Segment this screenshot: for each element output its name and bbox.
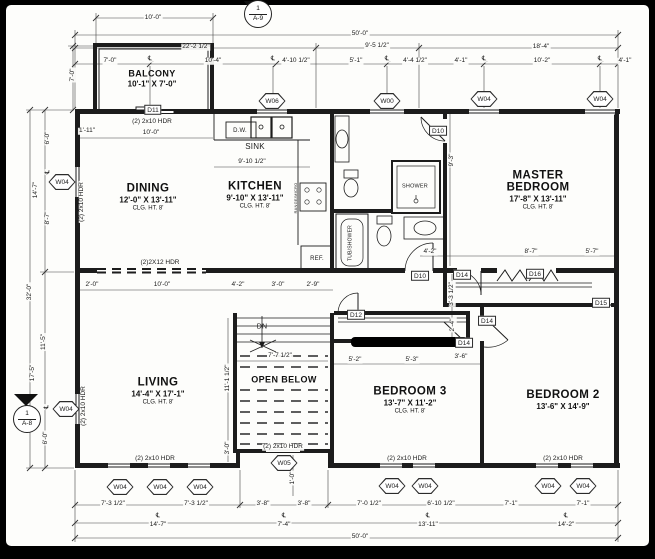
window-tag: W04 (107, 479, 134, 495)
window-tag-label: W04 (379, 478, 406, 494)
window-tag: W06 (259, 93, 286, 109)
dimension-label: ℄ (425, 513, 431, 520)
door-tag: D10 (429, 126, 447, 136)
window-tag: W04 (379, 478, 406, 494)
dimension-label: ℄ (155, 513, 161, 520)
room-label: KITCHEN9'-10" X 13'-11"CLG. HT. 8' (226, 180, 283, 209)
dimension-label: 10'-0" (144, 15, 163, 22)
dimension-label: 9'-5 1/2" (364, 43, 390, 50)
room-name: OPEN BELOW (251, 375, 317, 384)
dimension-label: 32'-0" (27, 283, 34, 302)
dimension-label: 3'-8" (256, 501, 271, 508)
window-tag: W04 (53, 401, 80, 417)
dimension-label: 6'-0" (45, 131, 52, 146)
header-label: (2) 2x10 HDR (81, 385, 88, 427)
door-tag: D11 (144, 105, 161, 115)
door-tag: D15 (592, 298, 610, 308)
dimension-label: 11'-5" (41, 333, 48, 351)
dimension-label: 4'-1" (618, 58, 633, 65)
room-size: 13'-7" X 11'-2" (373, 399, 446, 408)
dimension-label: 4'-10 1/2" (281, 58, 310, 65)
dimension-label: 7'-4" (277, 522, 292, 529)
fixture-label: DN (256, 324, 269, 331)
room-label: BEDROOM 213'-6" X 14'-9" (526, 389, 599, 411)
dimension-label: 14'-7" (33, 181, 40, 200)
dimension-label: 3'-3 1/2" (449, 281, 456, 307)
dimension-label: 7'-3 1/2" (183, 501, 209, 508)
dimension-label: 14'-2" (557, 522, 576, 529)
room-name: LIVING (131, 376, 184, 388)
room-name: BALCONY (128, 69, 177, 78)
window-tag-label: W05 (271, 455, 298, 471)
header-label: (2) 2x10 HDR (542, 456, 584, 463)
door-tag: D12 (347, 310, 365, 320)
header-label: (2) 2x10 HDR (262, 444, 304, 451)
dimension-label: 10'-2" (533, 58, 552, 65)
dimension-label: 4'-1" (454, 58, 469, 65)
room-label: MASTER BEDROOM17'-8" X 13'-11"CLG. HT. 8… (498, 169, 578, 210)
window-tag-label: W04 (187, 479, 214, 495)
dimension-label: 3'-0" (271, 282, 286, 289)
window-tag: W04 (570, 478, 597, 494)
door-tag: D14 (455, 338, 473, 348)
door-tag: D14 (453, 270, 471, 280)
dimension-label: 3'-8" (297, 501, 312, 508)
window-tag: W04 (471, 91, 498, 107)
fixture-label: RANGE/MICRO (294, 182, 298, 215)
dimension-label: 7'-0 1/2" (356, 501, 382, 508)
header-label: (2) 2x10 HDR (386, 456, 428, 463)
dimension-label: 2'-4" (450, 318, 457, 333)
dimension-label: 1'-11" (78, 128, 96, 135)
window-tag-label: W04 (535, 478, 562, 494)
header-label: (2) 2x10 HDR (79, 181, 86, 223)
dimension-label: 5'-2" (348, 357, 363, 364)
dimension-label: 9'-3" (449, 153, 456, 168)
window-tag: W00 (374, 93, 401, 109)
room-ceiling-height: CLG. HT. 8' (131, 400, 184, 406)
dimension-label: 4'-2" (423, 249, 438, 256)
dimension-label: 4'-2" (231, 282, 246, 289)
dimension-label: 7'-0" (103, 58, 118, 65)
dimension-label: 18'-4" (532, 44, 551, 51)
dimension-label: 10'-0" (153, 282, 172, 289)
window-tag: W04 (49, 174, 76, 190)
window-tag-label: W06 (259, 93, 286, 109)
dimension-label: ℄ (597, 56, 603, 63)
room-name: DINING (119, 182, 176, 194)
dimension-label: 10'-0" (142, 130, 161, 137)
room-ceiling-height: CLG. HT. 8' (119, 206, 176, 212)
door-tag: D16 (526, 269, 544, 279)
dimension-label: 7'-3 1/2" (100, 501, 126, 508)
window-tag-label: W04 (107, 479, 134, 495)
room-size: 17'-8" X 13'-11" (498, 195, 578, 204)
room-size: 13'-6" X 14'-9" (526, 402, 599, 411)
dimension-label: 5'-7" (585, 249, 600, 256)
window-tag: W04 (187, 479, 214, 495)
dimension-label: 5'-3" (405, 357, 420, 364)
dimension-label: 50'-0" (351, 534, 370, 541)
dimension-label: ℄ (563, 513, 569, 520)
window-tag-label: W04 (471, 91, 498, 107)
window-tag-label: W04 (570, 478, 597, 494)
fixture-label: D.W. (232, 128, 248, 134)
dimension-label: 5'-1" (349, 58, 364, 65)
dimension-label: 2'-0" (85, 282, 100, 289)
dimension-label: 6'-10 1/2" (426, 501, 455, 508)
dimension-label: ℄ (384, 56, 390, 63)
dimension-label: 11'-1 1/2" (225, 364, 232, 393)
dimension-label: 9'-10 1/2" (237, 159, 266, 166)
dimension-label: 1'-0" (290, 471, 297, 486)
dimension-label: 13'-11" (417, 522, 439, 529)
room-ceiling-height: CLG. HT. 8' (226, 204, 283, 210)
room-size: 12'-0" X 13'-11" (119, 196, 176, 205)
fixture-label: TUB/SHOWER (349, 224, 354, 262)
floor-plan-sheet: 1 A-9 1 A-8 10'-0"22'-2 1/2"50'-0"9'-5 1… (0, 0, 655, 559)
room-size: 14'-4" X 17'-1" (131, 390, 184, 399)
dimension-label: ℄ (270, 56, 276, 63)
door-tag: D10 (411, 271, 429, 281)
room-size: 9'-10" X 13'-11" (226, 194, 283, 203)
dimension-label: 3'-0" (225, 441, 232, 456)
window-tag-label: W04 (147, 479, 174, 495)
dimension-label: 8'-7" (524, 249, 539, 256)
dimension-label: 4'-4 1/2" (402, 58, 428, 65)
dimension-label: 10'-4" (204, 58, 223, 65)
fixture-label: SHOWER (401, 184, 429, 190)
room-label: DINING12'-0" X 13'-11"CLG. HT. 8' (119, 182, 176, 211)
window-tag-label: W04 (49, 174, 76, 190)
dimension-label: 2'-9" (306, 282, 321, 289)
dimension-label: 7'-7 1/2" (267, 353, 293, 360)
label-layer: 10'-0"22'-2 1/2"50'-0"9'-5 1/2"18'-4"7'-… (0, 0, 655, 559)
dimension-label: ℄ (281, 513, 287, 520)
room-ceiling-height: CLG. HT. 8' (498, 205, 578, 211)
room-name: BEDROOM 3 (373, 385, 446, 397)
window-tag-label: W04 (587, 91, 614, 107)
room-name: MASTER BEDROOM (498, 169, 578, 193)
room-ceiling-height: CLG. HT. 8' (373, 409, 446, 415)
dimension-label: 6'-0" (43, 431, 50, 446)
window-tag: W04 (412, 478, 439, 494)
dimension-label: ℄ (147, 56, 153, 63)
header-label: (2) 2x10 HDR (134, 456, 176, 463)
dimension-label: 7'-0" (70, 68, 77, 83)
dimension-label: 7'-1" (576, 501, 591, 508)
window-tag-label: W04 (53, 401, 80, 417)
dimension-label: ℄ (481, 56, 487, 63)
window-tag: W04 (535, 478, 562, 494)
window-tag-label: W00 (374, 93, 401, 109)
fixture-label: REF. (309, 256, 325, 262)
header-label: (2) 2x10 HDR (131, 119, 173, 126)
dimension-label: 22'-2 1/2" (181, 44, 210, 51)
room-size: 10'-1" X 7'-0" (128, 80, 177, 89)
dimension-label: 8'-7" (45, 211, 52, 226)
room-label: LIVING14'-4" X 17'-1"CLG. HT. 8' (131, 376, 184, 405)
dimension-label: 17'-5" (30, 364, 37, 383)
room-name: KITCHEN (226, 180, 283, 192)
fixture-label: SINK (244, 143, 265, 151)
dimension-label: 7'-1" (504, 501, 519, 508)
door-tag: D14 (478, 316, 496, 326)
window-tag: W04 (587, 91, 614, 107)
room-label: OPEN BELOW (251, 375, 317, 384)
dimension-label: ℄ (44, 404, 51, 410)
window-tag-label: W04 (412, 478, 439, 494)
window-tag: W05 (271, 455, 298, 471)
dimension-label: 50'-0" (351, 31, 370, 38)
header-label: (2)2X12 HDR (139, 260, 180, 267)
dimension-label: 14'-7" (149, 522, 168, 529)
room-label: BALCONY10'-1" X 7'-0" (128, 69, 177, 88)
dimension-label: 3'-6" (454, 354, 469, 361)
room-label: BEDROOM 313'-7" X 11'-2"CLG. HT. 8' (373, 385, 446, 414)
window-tag: W04 (147, 479, 174, 495)
room-name: BEDROOM 2 (526, 389, 599, 401)
